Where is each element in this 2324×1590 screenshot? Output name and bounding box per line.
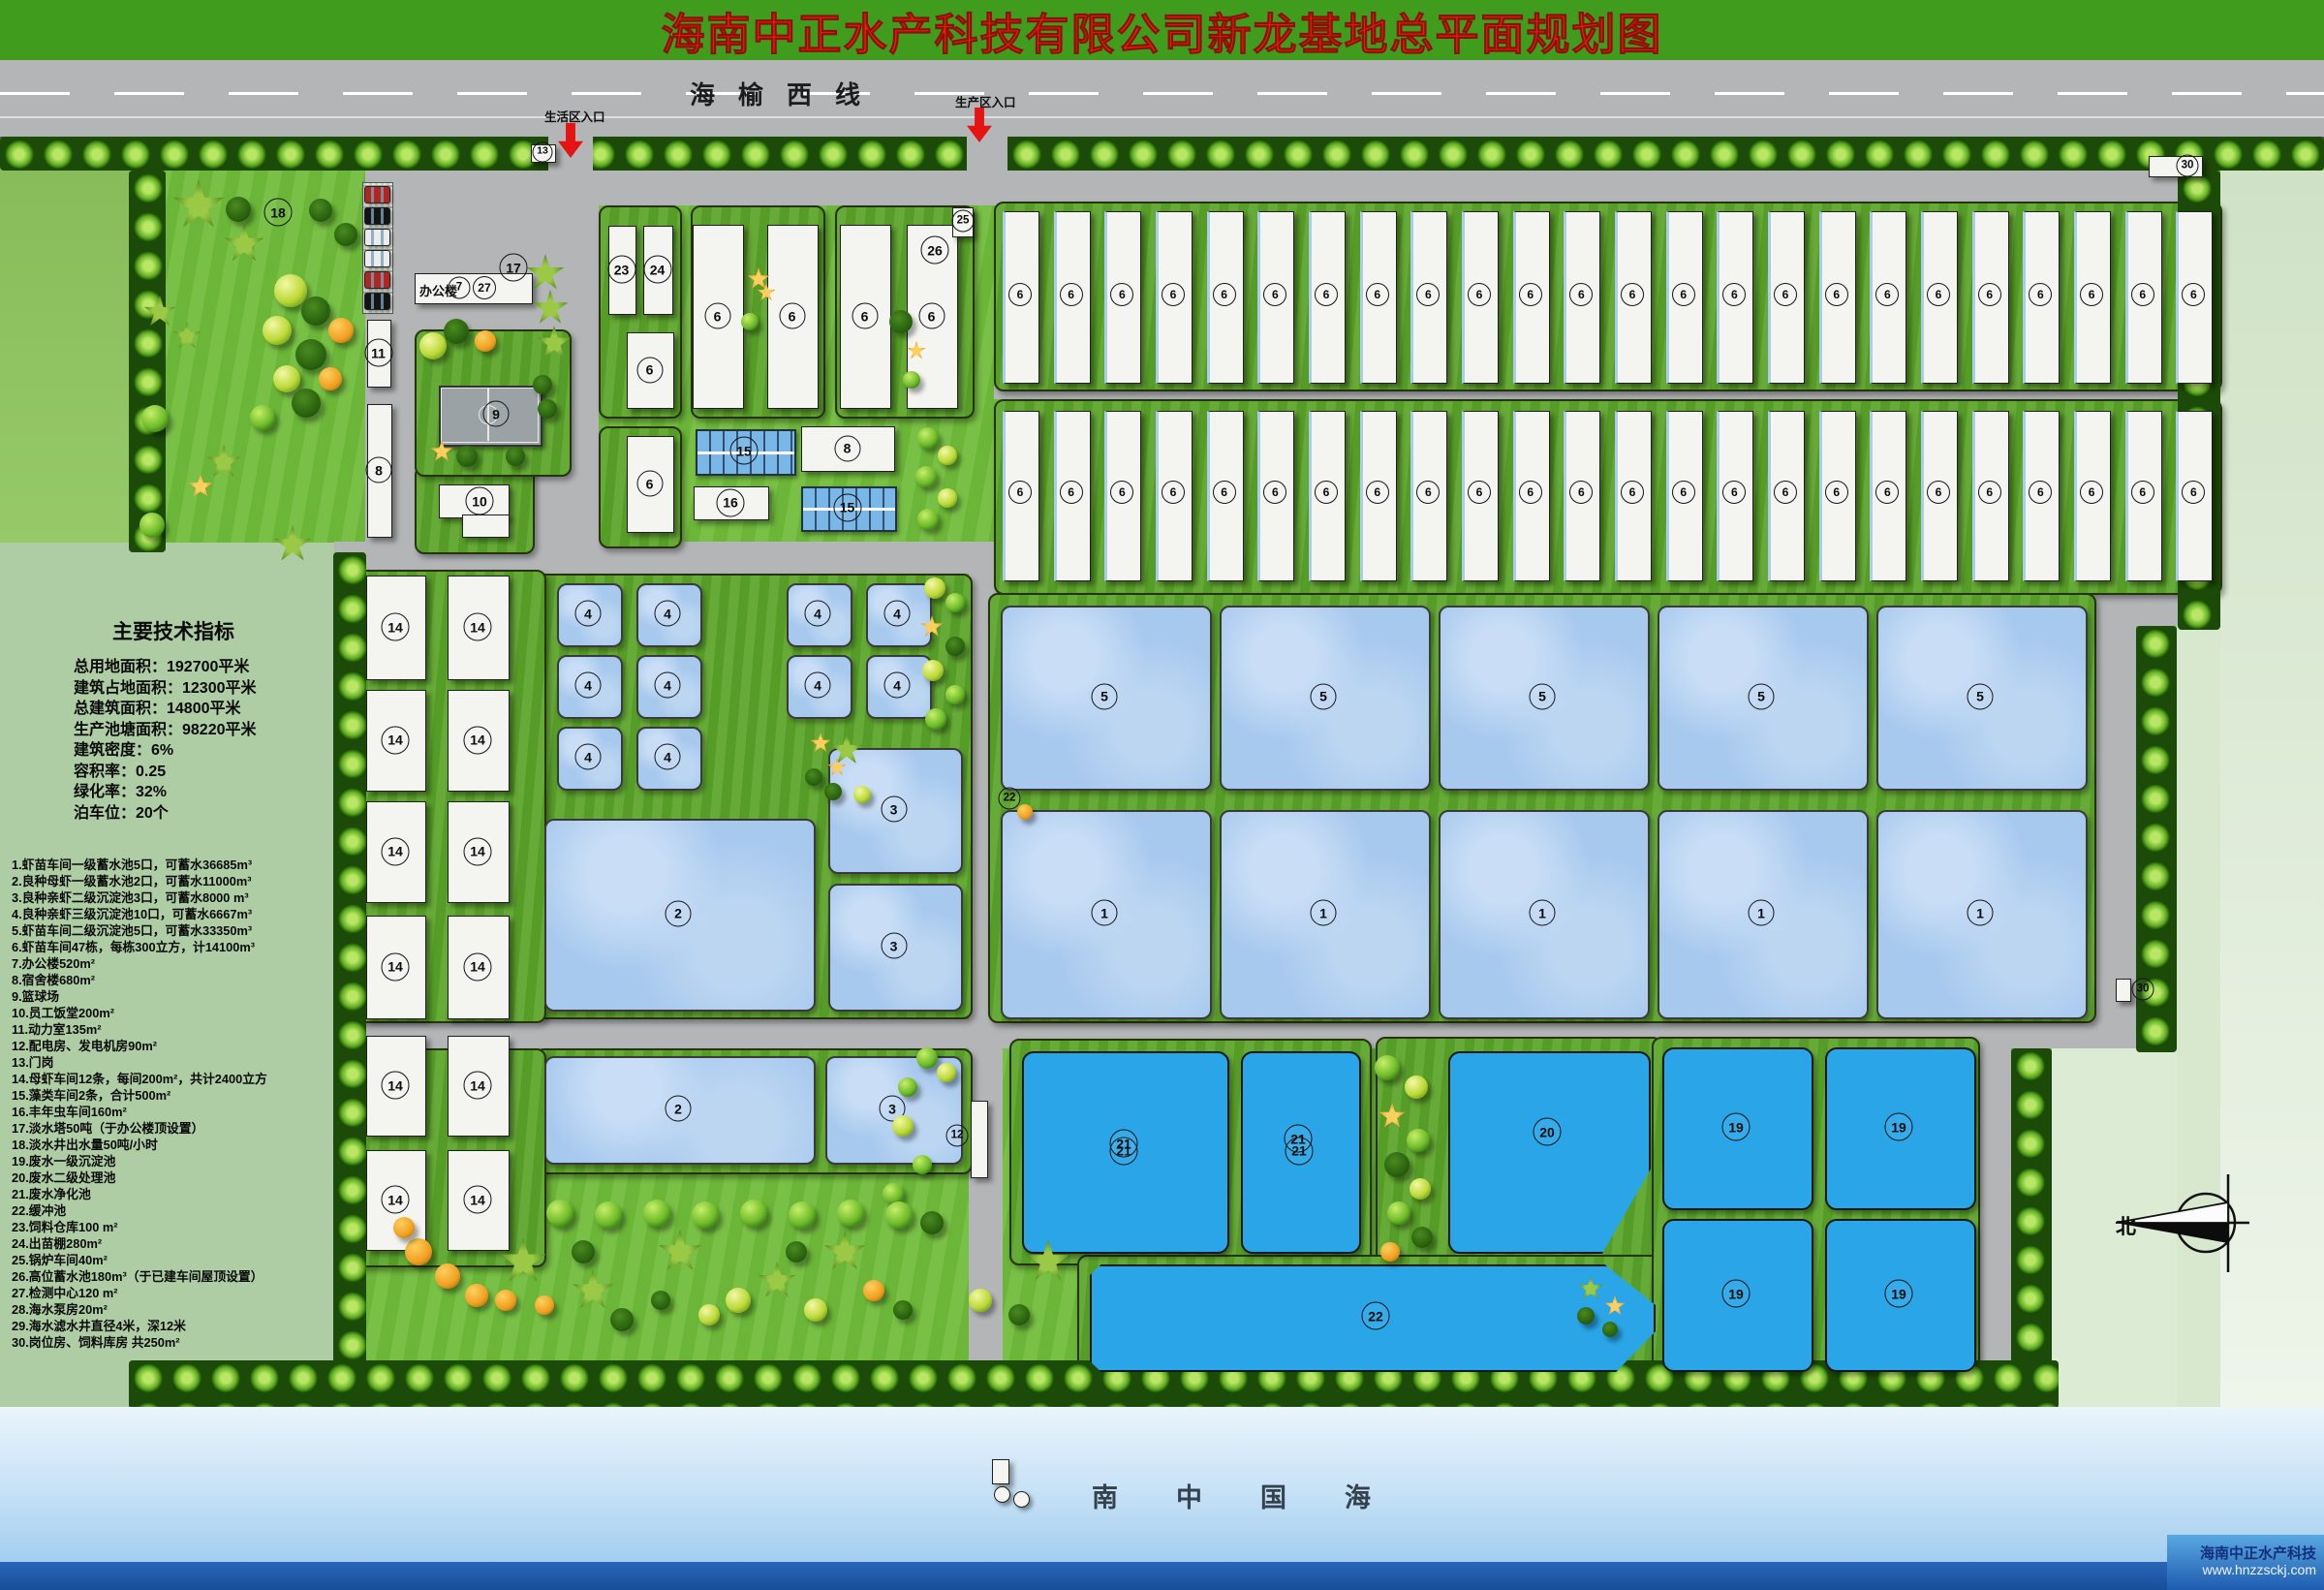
legend-item: 28.海水泵房20m² [12, 1301, 346, 1318]
plan-label-6: 6 [2029, 283, 2052, 306]
tree [924, 577, 945, 599]
tree [546, 1200, 573, 1227]
plan-label-6: 6 [1927, 283, 1950, 306]
tree [533, 375, 552, 394]
plan-label-6: 6 [1060, 481, 1083, 504]
legend-item: 3.良种亲虾二级沉淀池3口，可蓄水8000 m³ [12, 889, 346, 906]
tree [945, 637, 965, 656]
plan-label-6: 6 [1621, 481, 1644, 504]
sea-bottom-bar [0, 1562, 2324, 1590]
tree [465, 1284, 488, 1307]
tree [141, 405, 169, 432]
indicators-lines: 总用地面积：192700平米建筑占地面积：12300平米总建筑面积：14800平… [74, 657, 257, 824]
watermark-url: www.hnzzsckj.com [2203, 1562, 2316, 1577]
tree [1407, 1129, 1430, 1152]
plan-label-1: 1 [1530, 900, 1556, 926]
indicator-line: 生产池塘面积：98220平米 [74, 720, 257, 741]
tree [863, 1280, 884, 1301]
tree [263, 316, 292, 345]
plan-label-6: 6 [1569, 481, 1593, 504]
plan-label-1: 1 [1092, 900, 1118, 926]
plan-label-22: 22 [1362, 1302, 1390, 1330]
tree [393, 1217, 415, 1238]
plan-label-6: 6 [1774, 481, 1797, 504]
filter-well [1013, 1491, 1030, 1508]
tree [274, 274, 307, 307]
plan-label-6: 6 [2182, 481, 2205, 504]
plan-label-15: 15 [730, 437, 759, 465]
legend-item: 12.配电房、发电机房90m² [12, 1038, 346, 1054]
legend-item: 20.废水二级处理池 [12, 1169, 346, 1186]
parked-car [364, 293, 390, 310]
tree [1008, 1304, 1030, 1325]
plan-label-4: 4 [805, 601, 831, 627]
legend-item: 11.动力室135m² [12, 1021, 346, 1038]
tree [226, 197, 251, 222]
plan-label-14: 14 [464, 613, 492, 641]
plan-label-19: 19 [1885, 1113, 1913, 1141]
tree [295, 339, 326, 370]
plan-label-6: 6 [1927, 481, 1950, 504]
legend-item: 14.母虾车间12条，每间200m²，共计2400立方 [12, 1071, 346, 1087]
tree [334, 223, 357, 246]
indicator-line: 绿化率：32% [74, 782, 257, 803]
tree [475, 330, 496, 352]
plan-label-4: 4 [575, 672, 602, 699]
plan-label-6: 6 [779, 303, 805, 329]
entrance-living-label: 生活区入口 [544, 107, 605, 125]
tree [726, 1288, 751, 1313]
plan-label-6: 6 [1366, 481, 1389, 504]
tree [495, 1290, 516, 1311]
plan-label-6: 6 [1008, 283, 1032, 306]
tree [903, 371, 920, 389]
tree [1577, 1307, 1595, 1325]
compass-north-label: 北 [2116, 1211, 2136, 1240]
tree [789, 1201, 816, 1229]
tree [892, 1115, 914, 1137]
boundary-tree-row [2011, 1048, 2052, 1368]
plan-label-5: 5 [1092, 683, 1118, 709]
plan-label-4: 4 [575, 744, 602, 770]
tree [405, 1238, 432, 1265]
plan-label-14: 14 [382, 726, 410, 754]
plan-label-1: 1 [1749, 900, 1775, 926]
tree [837, 1200, 864, 1227]
plan-label-26: 26 [921, 236, 949, 265]
tree [301, 296, 330, 326]
plan-label-6: 6 [1875, 481, 1899, 504]
plan-label-15: 15 [833, 493, 861, 521]
tree [572, 1240, 595, 1263]
plan-label-14: 14 [464, 1186, 492, 1214]
plan-label-30: 30 [2177, 155, 2199, 177]
plan-label-21: 21 [1285, 1125, 1313, 1153]
plan-label-6: 6 [2131, 283, 2154, 306]
outside-left-green [0, 137, 131, 543]
tree [740, 1200, 767, 1227]
plan-label-5: 5 [1968, 683, 1994, 709]
highway-name: 海榆西线 [690, 76, 883, 111]
plan-label-6: 6 [1060, 283, 1083, 306]
plan-label-16: 16 [717, 488, 745, 516]
tree [920, 1211, 944, 1234]
indicator-line: 总用地面积：192700平米 [74, 657, 257, 678]
plan-label-6: 6 [1978, 283, 2001, 306]
plan-label-6: 6 [852, 303, 878, 329]
legend-item: 9.篮球场 [12, 988, 346, 1005]
plan-label-14: 14 [464, 952, 492, 981]
plan-label-6: 6 [636, 471, 663, 497]
plan-label-6: 6 [1672, 283, 1695, 306]
legend-item: 17.淡水塔50吨（于办公楼顶设置） [12, 1120, 346, 1137]
plan-label-6: 6 [636, 357, 663, 383]
tree [419, 332, 447, 359]
highway-centerline [0, 92, 2324, 95]
tree [595, 1201, 622, 1229]
plan-label-2: 2 [666, 1096, 692, 1122]
highway: 海榆西线 [0, 60, 2324, 139]
plan-label-3: 3 [881, 933, 907, 959]
legend-item: 15.藻类车间2条，合计500m² [12, 1087, 346, 1104]
plan-label-5: 5 [1749, 683, 1775, 709]
plan-label-4: 4 [575, 601, 602, 627]
plan-label-14: 14 [464, 1072, 492, 1100]
tree [945, 685, 965, 704]
plan-label-6: 6 [1008, 481, 1032, 504]
tree [885, 1201, 913, 1229]
plan-label-1: 1 [1311, 900, 1337, 926]
tree [1380, 1242, 1400, 1262]
tree [273, 365, 300, 392]
legend-item: 27.检测中心120 m² [12, 1285, 346, 1301]
legend-item: 5.虾苗车间二级沉淀池5口，可蓄水33350m³ [12, 922, 346, 939]
parked-car [364, 229, 390, 246]
plan-label-6: 6 [1519, 481, 1542, 504]
plan-label-20: 20 [1534, 1118, 1562, 1146]
tree [922, 660, 944, 681]
plan-label-24: 24 [643, 256, 671, 284]
plan-label-6: 6 [2131, 481, 2154, 504]
tree [538, 399, 557, 419]
watermark-plate: 海南中正水产科技 www.hnzzsckj.com [2167, 1535, 2324, 1590]
plan-label-2: 2 [666, 900, 692, 926]
plan-label-12: 12 [946, 1125, 969, 1147]
tree [435, 1263, 460, 1289]
plan-label-6: 6 [1110, 283, 1133, 306]
tree [937, 1063, 956, 1082]
plan-label-4: 4 [655, 601, 681, 627]
indicators-title: 主要技术指标 [112, 616, 234, 645]
plan-label-6: 6 [1774, 283, 1797, 306]
plan-label-25: 25 [952, 210, 975, 233]
tree [945, 593, 965, 612]
plan-label-6: 6 [1825, 481, 1848, 504]
plan-label-6: 6 [2029, 481, 2052, 504]
indicator-line: 容积率：0.25 [74, 762, 257, 783]
legend-item: 21.废水净化池 [12, 1186, 346, 1202]
plan-label-4: 4 [655, 744, 681, 770]
legend-item: 7.办公楼520m² [12, 955, 346, 972]
tree [1411, 1227, 1433, 1248]
legend-item: 1.虾苗车间一级蓄水池5口，可蓄水36685m³ [12, 857, 346, 873]
tree [938, 446, 957, 465]
plan-label-6: 6 [1468, 283, 1491, 306]
legend-item: 16.丰年虫车间160m² [12, 1104, 346, 1120]
tree [1387, 1201, 1410, 1225]
plan-label-14: 14 [382, 1186, 410, 1214]
legend-item: 2.良种母虾一级蓄水池2口，可蓄水11000m³ [12, 873, 346, 889]
tree [651, 1291, 670, 1310]
plan-label-6: 6 [2080, 283, 2103, 306]
plan-label-8: 8 [366, 457, 392, 483]
tree [456, 446, 478, 467]
plan-label-6: 6 [1416, 283, 1440, 306]
plan-label-6: 6 [1825, 283, 1848, 306]
plan-label-21: 21 [1110, 1130, 1138, 1158]
seawater-pump-house [992, 1459, 1009, 1484]
tree [915, 466, 937, 487]
title-band: 海南中正水产科技有限公司新龙基地总平面规划图 [0, 0, 2324, 60]
indicator-line: 建筑占地面积：12300平米 [74, 678, 257, 700]
filter-well [994, 1486, 1010, 1503]
tree [319, 367, 342, 390]
tree [917, 509, 939, 530]
plan-label-19: 19 [1722, 1280, 1751, 1308]
plan-label-13: 13 [533, 142, 553, 163]
plan-label-9: 9 [483, 401, 510, 427]
tree [139, 513, 165, 538]
tree [898, 1077, 917, 1097]
plan-label-19: 19 [1885, 1280, 1913, 1308]
plan-label-14: 14 [382, 613, 410, 641]
watermark-company: 海南中正水产科技 [2200, 1543, 2316, 1563]
plan-label-4: 4 [805, 672, 831, 699]
plan-label-14: 14 [382, 837, 410, 865]
roadside-tree-row [0, 137, 2324, 171]
legend-item: 10.员工饭堂200m² [12, 1005, 346, 1021]
plan-label-7: 7 [449, 277, 471, 299]
legend-item: 13.门岗 [12, 1054, 346, 1071]
guard-feed-house-30 [2116, 979, 2131, 1002]
plan-label-6: 6 [1315, 481, 1338, 504]
plan-label-4: 4 [655, 672, 681, 699]
plan-label-27: 27 [473, 276, 496, 299]
highway-edge-line [0, 116, 2324, 118]
sea-name: 南中国海 [1092, 1477, 1429, 1514]
plan-label-6: 6 [1672, 481, 1695, 504]
tree [692, 1201, 719, 1229]
plan-label-6: 6 [1162, 481, 1185, 504]
plan-title: 海南中正水产科技有限公司新龙基地总平面规划图 [661, 0, 1662, 62]
plan-label-10: 10 [466, 487, 494, 515]
legend-item: 23.饲料仓库100 m² [12, 1219, 346, 1235]
tree [328, 318, 354, 343]
tree [889, 310, 913, 333]
plan-label-4: 4 [884, 672, 911, 699]
tree [916, 1047, 938, 1069]
tree [309, 199, 332, 222]
plan-label-6: 6 [1519, 283, 1542, 306]
legend-item: 24.出苗棚280m² [12, 1235, 346, 1252]
tree [913, 1155, 932, 1174]
tree [824, 783, 842, 800]
tree [786, 1241, 807, 1263]
tree [1017, 804, 1033, 820]
indicator-line: 泊车位：20个 [74, 803, 257, 825]
tree [1602, 1322, 1618, 1337]
plan-label-4: 4 [884, 601, 911, 627]
plan-label-6: 6 [1621, 283, 1644, 306]
plan-label-6: 6 [1978, 481, 2001, 504]
tree [1405, 1076, 1428, 1099]
plan-label-6: 6 [1722, 481, 1746, 504]
plan-label-6: 6 [1110, 481, 1133, 504]
plan-label-6: 6 [1569, 283, 1593, 306]
plan-label-6: 6 [1722, 283, 1746, 306]
plan-label-6: 6 [1263, 481, 1286, 504]
parked-car [364, 186, 390, 203]
indicator-line: 建筑密度：6% [74, 740, 257, 762]
legend-item: 25.锅炉车间40m² [12, 1252, 346, 1268]
plan-label-22: 22 [999, 788, 1021, 810]
tree [250, 405, 275, 430]
plan-label-6: 6 [1468, 481, 1491, 504]
plan-label-6: 6 [1315, 283, 1338, 306]
tree [1410, 1178, 1431, 1200]
plan-label-11: 11 [364, 339, 392, 367]
parked-car [364, 250, 390, 267]
tree [444, 319, 469, 344]
tree [925, 708, 946, 730]
legend-item: 29.海水滤水井直径4米，深12米 [12, 1318, 346, 1334]
plan-label-14: 14 [464, 837, 492, 865]
tree [643, 1200, 670, 1227]
tree [1384, 1152, 1410, 1177]
tree [506, 447, 525, 466]
tree [610, 1308, 634, 1331]
plan-label-8: 8 [834, 435, 860, 461]
indicator-line: 总建筑面积：14800平米 [74, 699, 257, 720]
entrance-production-label: 生产区入口 [955, 92, 1016, 110]
plan-label-6: 6 [2080, 481, 2103, 504]
legend-item: 8.宿舍楼680m² [12, 972, 346, 988]
plan-label-6: 6 [1213, 481, 1236, 504]
plan-label-30: 30 [2132, 979, 2154, 1001]
legend-list: 1.虾苗车间一级蓄水池5口，可蓄水36685m³2.良种母虾一级蓄水池2口，可蓄… [12, 857, 346, 1351]
plan-label-23: 23 [607, 256, 635, 284]
parked-car [364, 207, 390, 225]
plan-label-14: 14 [382, 952, 410, 981]
tree [741, 313, 759, 330]
tree [853, 786, 871, 803]
outside-right-2 [2177, 626, 2220, 1407]
plan-label-5: 5 [1311, 683, 1337, 709]
plan-label-6: 6 [704, 303, 730, 329]
road [594, 171, 2218, 205]
tree [1375, 1055, 1400, 1080]
tree [698, 1304, 720, 1325]
tree [938, 488, 957, 508]
plan-label-6: 6 [918, 303, 945, 329]
legend-item: 4.良种亲虾三级沉淀池10口，可蓄水6667m³ [12, 906, 346, 922]
tree [805, 768, 822, 786]
legend-item: 6.虾苗车间47栋，每栋300立方，计14100m³ [12, 939, 346, 955]
boundary-tree-row [129, 171, 166, 552]
site-plan: 海南中正水产科技有限公司新龙基地总平面规划图 海榆西线 生活区入口 生产区入口 … [0, 0, 2324, 1590]
plan-label-6: 6 [1416, 481, 1440, 504]
legend-item: 30.岗位房、饲料库房 共250m² [12, 1334, 346, 1351]
plan-label-1: 1 [1968, 900, 1994, 926]
tree [893, 1300, 913, 1320]
tree [917, 427, 939, 449]
tree [969, 1289, 992, 1312]
tree [804, 1298, 827, 1322]
plan-label-19: 19 [1722, 1113, 1751, 1141]
plan-label-6: 6 [2182, 283, 2205, 306]
legend-item: 19.废水一级沉淀池 [12, 1153, 346, 1169]
plan-label-3: 3 [881, 796, 907, 823]
power-house-12 [971, 1101, 988, 1178]
plan-label-6: 6 [1366, 283, 1389, 306]
legend-item: 22.缓冲池 [12, 1202, 346, 1219]
legend-item: 26.高位蓄水池180m³（于已建车间屋顶设置） [12, 1268, 346, 1285]
canteen-10 [462, 514, 510, 538]
tree [292, 389, 321, 418]
plan-label-6: 6 [1213, 283, 1236, 306]
plan-label-6: 6 [1162, 283, 1185, 306]
plan-label-6: 6 [1875, 283, 1899, 306]
parked-car [364, 271, 390, 289]
tree [535, 1295, 554, 1315]
entrance-production-gap [967, 137, 1007, 171]
plan-label-14: 14 [382, 1072, 410, 1100]
plan-label-5: 5 [1530, 683, 1556, 709]
plan-label-17: 17 [500, 254, 528, 282]
plan-label-6: 6 [1263, 283, 1286, 306]
plan-label-18: 18 [264, 199, 293, 227]
legend-item: 18.淡水井出水量50吨/小时 [12, 1137, 346, 1153]
plan-label-14: 14 [464, 726, 492, 754]
